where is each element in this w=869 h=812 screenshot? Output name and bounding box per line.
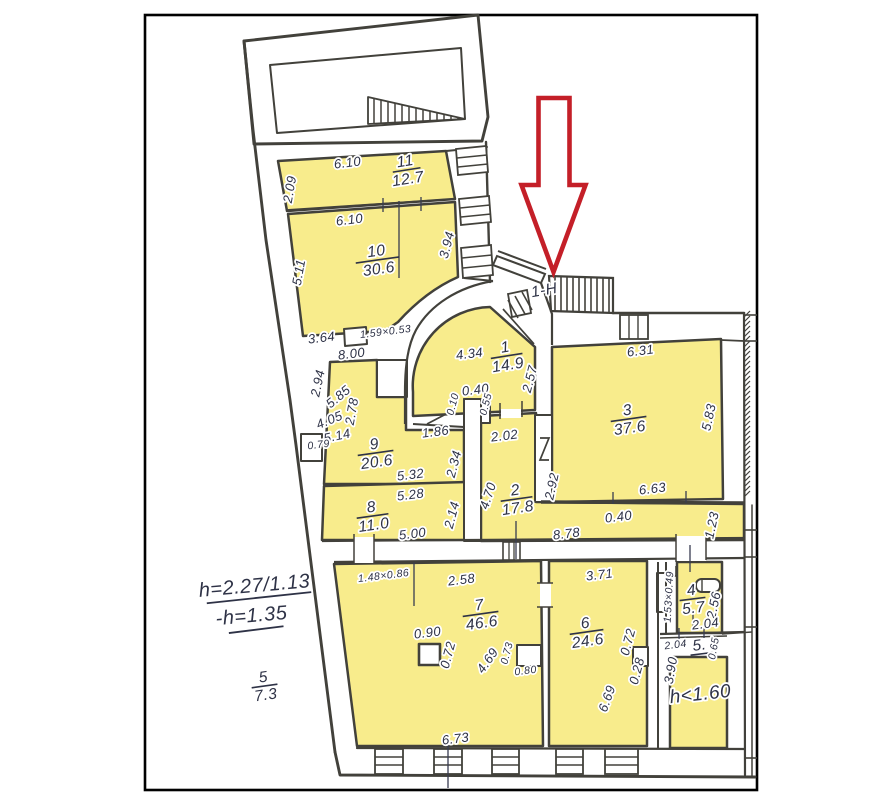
svg-text:5.: 5. <box>691 636 707 655</box>
svg-text:7.3: 7.3 <box>253 685 278 705</box>
